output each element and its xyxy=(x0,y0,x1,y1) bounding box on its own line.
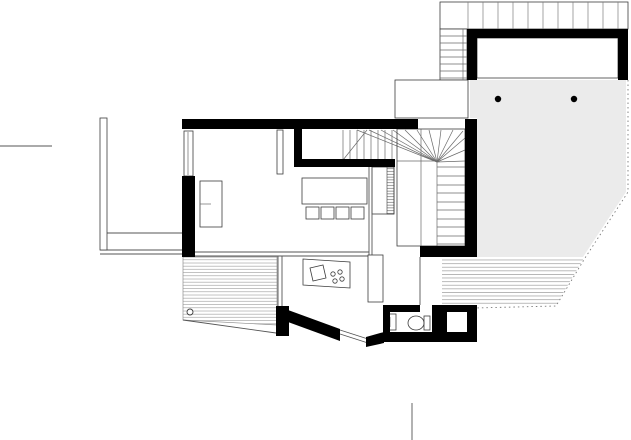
floor-plan-drawing xyxy=(0,0,631,440)
patio-east-wall xyxy=(618,29,628,80)
stair-east-wall xyxy=(465,119,477,257)
patio-north-wall xyxy=(467,29,628,38)
kitchen-counter-shelf-ticks xyxy=(387,167,394,214)
toilet-tank xyxy=(424,316,430,330)
hall-wall-band xyxy=(294,159,395,167)
wood-deck-hatched xyxy=(183,257,277,325)
house-north-wall xyxy=(182,119,418,129)
patio-court xyxy=(477,38,618,78)
west-window xyxy=(184,131,193,176)
bath-north-wall xyxy=(383,305,420,312)
kitchen-island xyxy=(303,259,350,288)
dining-chair xyxy=(351,207,364,219)
garden-wall xyxy=(100,118,107,250)
deck-drain xyxy=(187,309,193,315)
stair-south-wall xyxy=(420,246,477,257)
bath-inner-wall xyxy=(432,312,447,333)
southwest-corner-post xyxy=(276,306,289,336)
bath-south-wall xyxy=(383,332,477,342)
terrace-column xyxy=(571,96,577,102)
terrace-column xyxy=(495,96,501,102)
house-west-wall xyxy=(182,176,195,257)
dining-chair xyxy=(321,207,334,219)
dining-chair xyxy=(306,207,319,219)
floor-plan-page xyxy=(0,0,631,440)
patio-west-wall xyxy=(467,29,477,80)
lightwell-notch xyxy=(395,80,468,118)
dining-chair xyxy=(336,207,349,219)
dining-table xyxy=(302,178,367,204)
wardrobe xyxy=(368,255,383,302)
